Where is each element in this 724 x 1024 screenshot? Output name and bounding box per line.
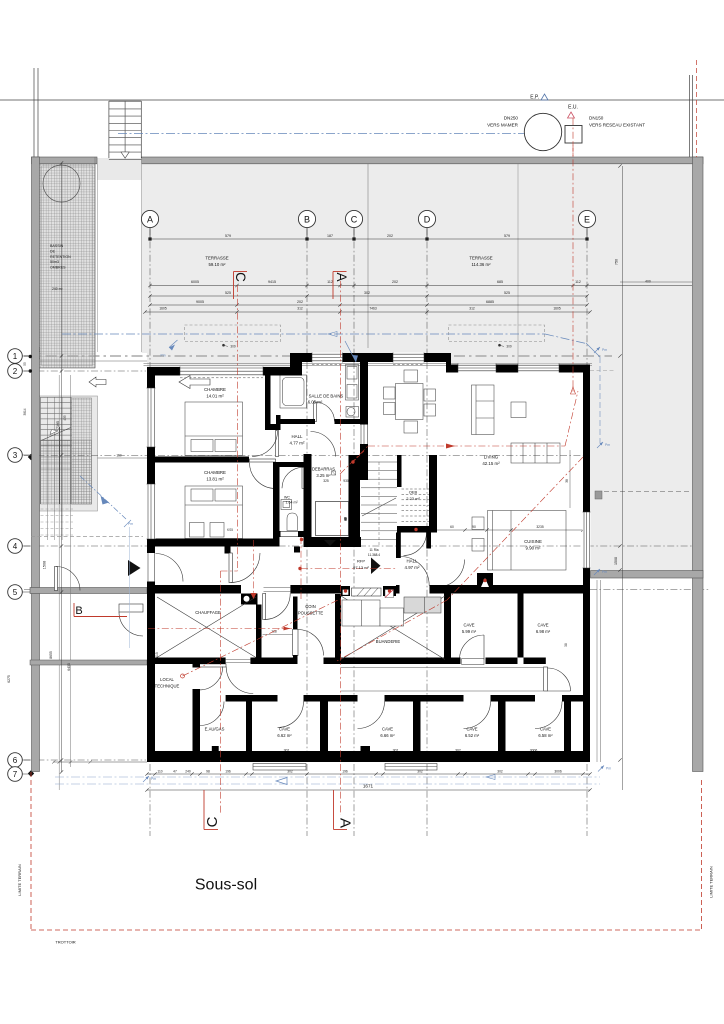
svg-text:312: 312 [297,307,303,311]
svg-text:COIN: COIN [305,604,315,609]
svg-text:7463: 7463 [369,307,377,311]
svg-text:1.64 m²: 1.64 m² [286,501,299,505]
svg-text:HALL: HALL [407,559,419,564]
svg-text:D: D [424,214,431,224]
svg-text:C: C [204,816,221,827]
svg-text:6433: 6433 [67,663,71,671]
svg-text:202: 202 [297,300,303,304]
svg-text:RETENTION: RETENTION [50,255,71,259]
svg-text:3235: 3235 [536,525,544,529]
svg-text:7: 7 [13,770,18,779]
svg-text:14.01 m²: 14.01 m² [206,393,224,398]
svg-text:90: 90 [472,525,476,529]
svg-text:95: 95 [344,517,348,521]
svg-text:1605: 1605 [159,307,167,311]
svg-text:E.AU/GAS: E.AU/GAS [205,727,225,732]
svg-text:302: 302 [364,291,370,295]
svg-text:Sous-sol: Sous-sol [195,877,257,894]
svg-text:Pm: Pm [151,777,156,781]
svg-text:CAVE: CAVE [382,727,393,732]
svg-text:SALLE DE BAINS: SALLE DE BAINS [309,394,344,399]
svg-text:A: A [334,272,349,281]
svg-text:435: 435 [63,415,67,421]
svg-text:55: 55 [23,362,27,366]
svg-text:CAVE: CAVE [463,623,474,628]
svg-text:5.99 m²: 5.99 m² [462,629,477,634]
svg-text:6885: 6885 [486,300,494,304]
svg-text:Pm: Pm [602,570,607,574]
svg-text:TERRASSE: TERRASSE [205,256,228,261]
svg-text:9415: 9415 [268,280,276,284]
svg-text:2.23 m²: 2.23 m² [406,496,420,501]
svg-text:CAVE: CAVE [540,727,551,732]
svg-text:6.05 m²: 6.05 m² [308,399,323,404]
svg-text:Pm: Pm [160,354,165,358]
svg-text:4.77 m²: 4.77 m² [290,440,305,445]
svg-text:114.36 m²: 114.36 m² [471,262,491,267]
svg-text:11 Ria: 11 Ria [370,548,379,552]
svg-text:98: 98 [206,769,210,773]
svg-text:3814: 3814 [23,408,27,415]
svg-text:B: B [304,214,310,224]
svg-text:CAVE: CAVE [279,727,290,732]
svg-text:E.U.: E.U. [568,105,578,111]
svg-text:6.52 m²: 6.52 m² [465,733,480,738]
svg-text:97.13 m²: 97.13 m² [353,565,369,570]
svg-text:DN150: DN150 [589,116,604,121]
svg-text:A: A [337,818,354,828]
svg-text:202: 202 [387,234,393,238]
svg-text:6.62 m²: 6.62 m² [277,733,292,738]
svg-text:C: C [233,272,248,282]
svg-text:38: 38 [565,479,569,483]
svg-text:579: 579 [225,234,231,238]
svg-text:9005: 9005 [196,300,204,304]
svg-text:TECHNIQUE: TECHNIQUE [155,683,180,688]
svg-text:325: 325 [323,479,329,483]
svg-text:6.66 m²: 6.66 m² [380,733,395,738]
svg-text:6.58 m²: 6.58 m² [538,733,553,738]
svg-text:525: 525 [504,291,510,295]
svg-text:CAVE: CAVE [466,727,477,732]
svg-text:3006: 3006 [554,769,562,773]
svg-text:59.10 m²: 59.10 m² [209,262,227,267]
svg-text:685: 685 [497,280,503,284]
svg-text:8655: 8655 [49,651,53,659]
svg-text:60: 60 [450,525,454,529]
svg-text:OMBRES: OMBRES [50,266,66,270]
svg-text:LIMITE TERRAIN: LIMITE TERRAIN [17,864,22,896]
svg-text:1508: 1508 [43,561,47,569]
svg-text:400: 400 [645,280,651,284]
svg-text:3: 3 [13,451,18,460]
svg-text:CHAMBRE: CHAMBRE [204,470,226,475]
svg-text:E.P.: E.P. [530,95,539,101]
svg-text:240: 240 [185,769,191,773]
svg-text:2: 2 [13,367,18,376]
svg-text:LIMITE TERRAIN: LIMITE TERRAIN [709,866,714,898]
svg-text:CUISINE: CUISINE [524,539,542,544]
svg-text:Pm: Pm [605,443,610,447]
svg-text:6: 6 [13,756,18,765]
svg-text:RFP: RFP [357,559,365,564]
svg-text:CHAMBRE: CHAMBRE [204,387,226,392]
svg-text:202: 202 [392,280,398,284]
svg-text:OEB: OEB [409,490,418,495]
svg-text:VERS RESEAU EXISTANT: VERS RESEAU EXISTANT [589,123,645,128]
svg-text:BUANDERIE: BUANDERIE [376,639,401,644]
svg-text:Pm: Pm [606,767,611,771]
svg-text:302: 302 [497,769,503,773]
svg-text:47: 47 [173,769,177,773]
svg-text:579: 579 [504,234,510,238]
svg-text:B: B [75,605,82,617]
svg-text:312: 312 [469,307,475,311]
svg-text:HALL: HALL [292,434,304,439]
svg-text:525: 525 [225,291,231,295]
svg-text:750: 750 [615,259,619,265]
svg-text:196: 196 [342,769,348,773]
svg-text:5: 5 [13,588,18,597]
svg-text:DN250: DN250 [504,116,519,121]
svg-text:9.90 m²: 9.90 m² [526,545,541,550]
svg-text:E: E [584,214,590,224]
svg-text:13.81 m²: 13.81 m² [206,476,224,481]
svg-text:187: 187 [327,234,333,238]
svg-text:A: A [147,214,153,224]
svg-text:38: 38 [564,643,568,647]
svg-text:309: 309 [506,345,512,349]
svg-text:1605: 1605 [553,307,561,311]
svg-text:309: 309 [230,345,236,349]
svg-text:50m3: 50m3 [50,260,59,264]
svg-text:3.25 m²: 3.25 m² [316,473,331,478]
svg-text:DEBARRAS: DEBARRAS [312,467,335,472]
svg-text:VERS MAMER: VERS MAMER [487,123,519,128]
svg-text:930: 930 [343,479,349,483]
svg-text:6005: 6005 [191,280,199,284]
svg-text:4.97 m²: 4.97 m² [405,565,420,570]
svg-text:TROTTOIR: TROTTOIR [55,940,75,945]
svg-text:CAVE: CAVE [537,623,548,628]
svg-text:TERRASSE: TERRASSE [469,256,492,261]
svg-text:11.368.4: 11.368.4 [368,553,380,557]
svg-text:DE: DE [50,249,56,253]
svg-text:KS5: KS5 [227,528,233,532]
svg-text:CHAUFFAGE: CHAUFFAGE [195,610,221,615]
svg-text:1508: 1508 [614,557,618,565]
svg-text:1: 1 [13,352,18,361]
svg-text:42.15 m²: 42.15 m² [482,461,500,466]
svg-text:112: 112 [575,280,581,284]
svg-text:112: 112 [327,280,333,284]
svg-text:6.98 m²: 6.98 m² [536,629,551,634]
svg-text:WC: WC [284,496,290,500]
svg-text:POUSSETTE: POUSSETTE [298,610,324,615]
svg-text:Pm: Pm [602,348,607,352]
svg-text:6275: 6275 [7,675,11,683]
svg-text:LIVING: LIVING [484,455,499,460]
svg-text:4: 4 [13,542,18,551]
svg-text:7395: 7395 [56,421,60,429]
svg-text:110: 110 [157,769,162,773]
svg-text:LOCAL: LOCAL [160,677,174,682]
svg-text:196: 196 [225,769,231,773]
svg-text:C: C [351,214,358,224]
